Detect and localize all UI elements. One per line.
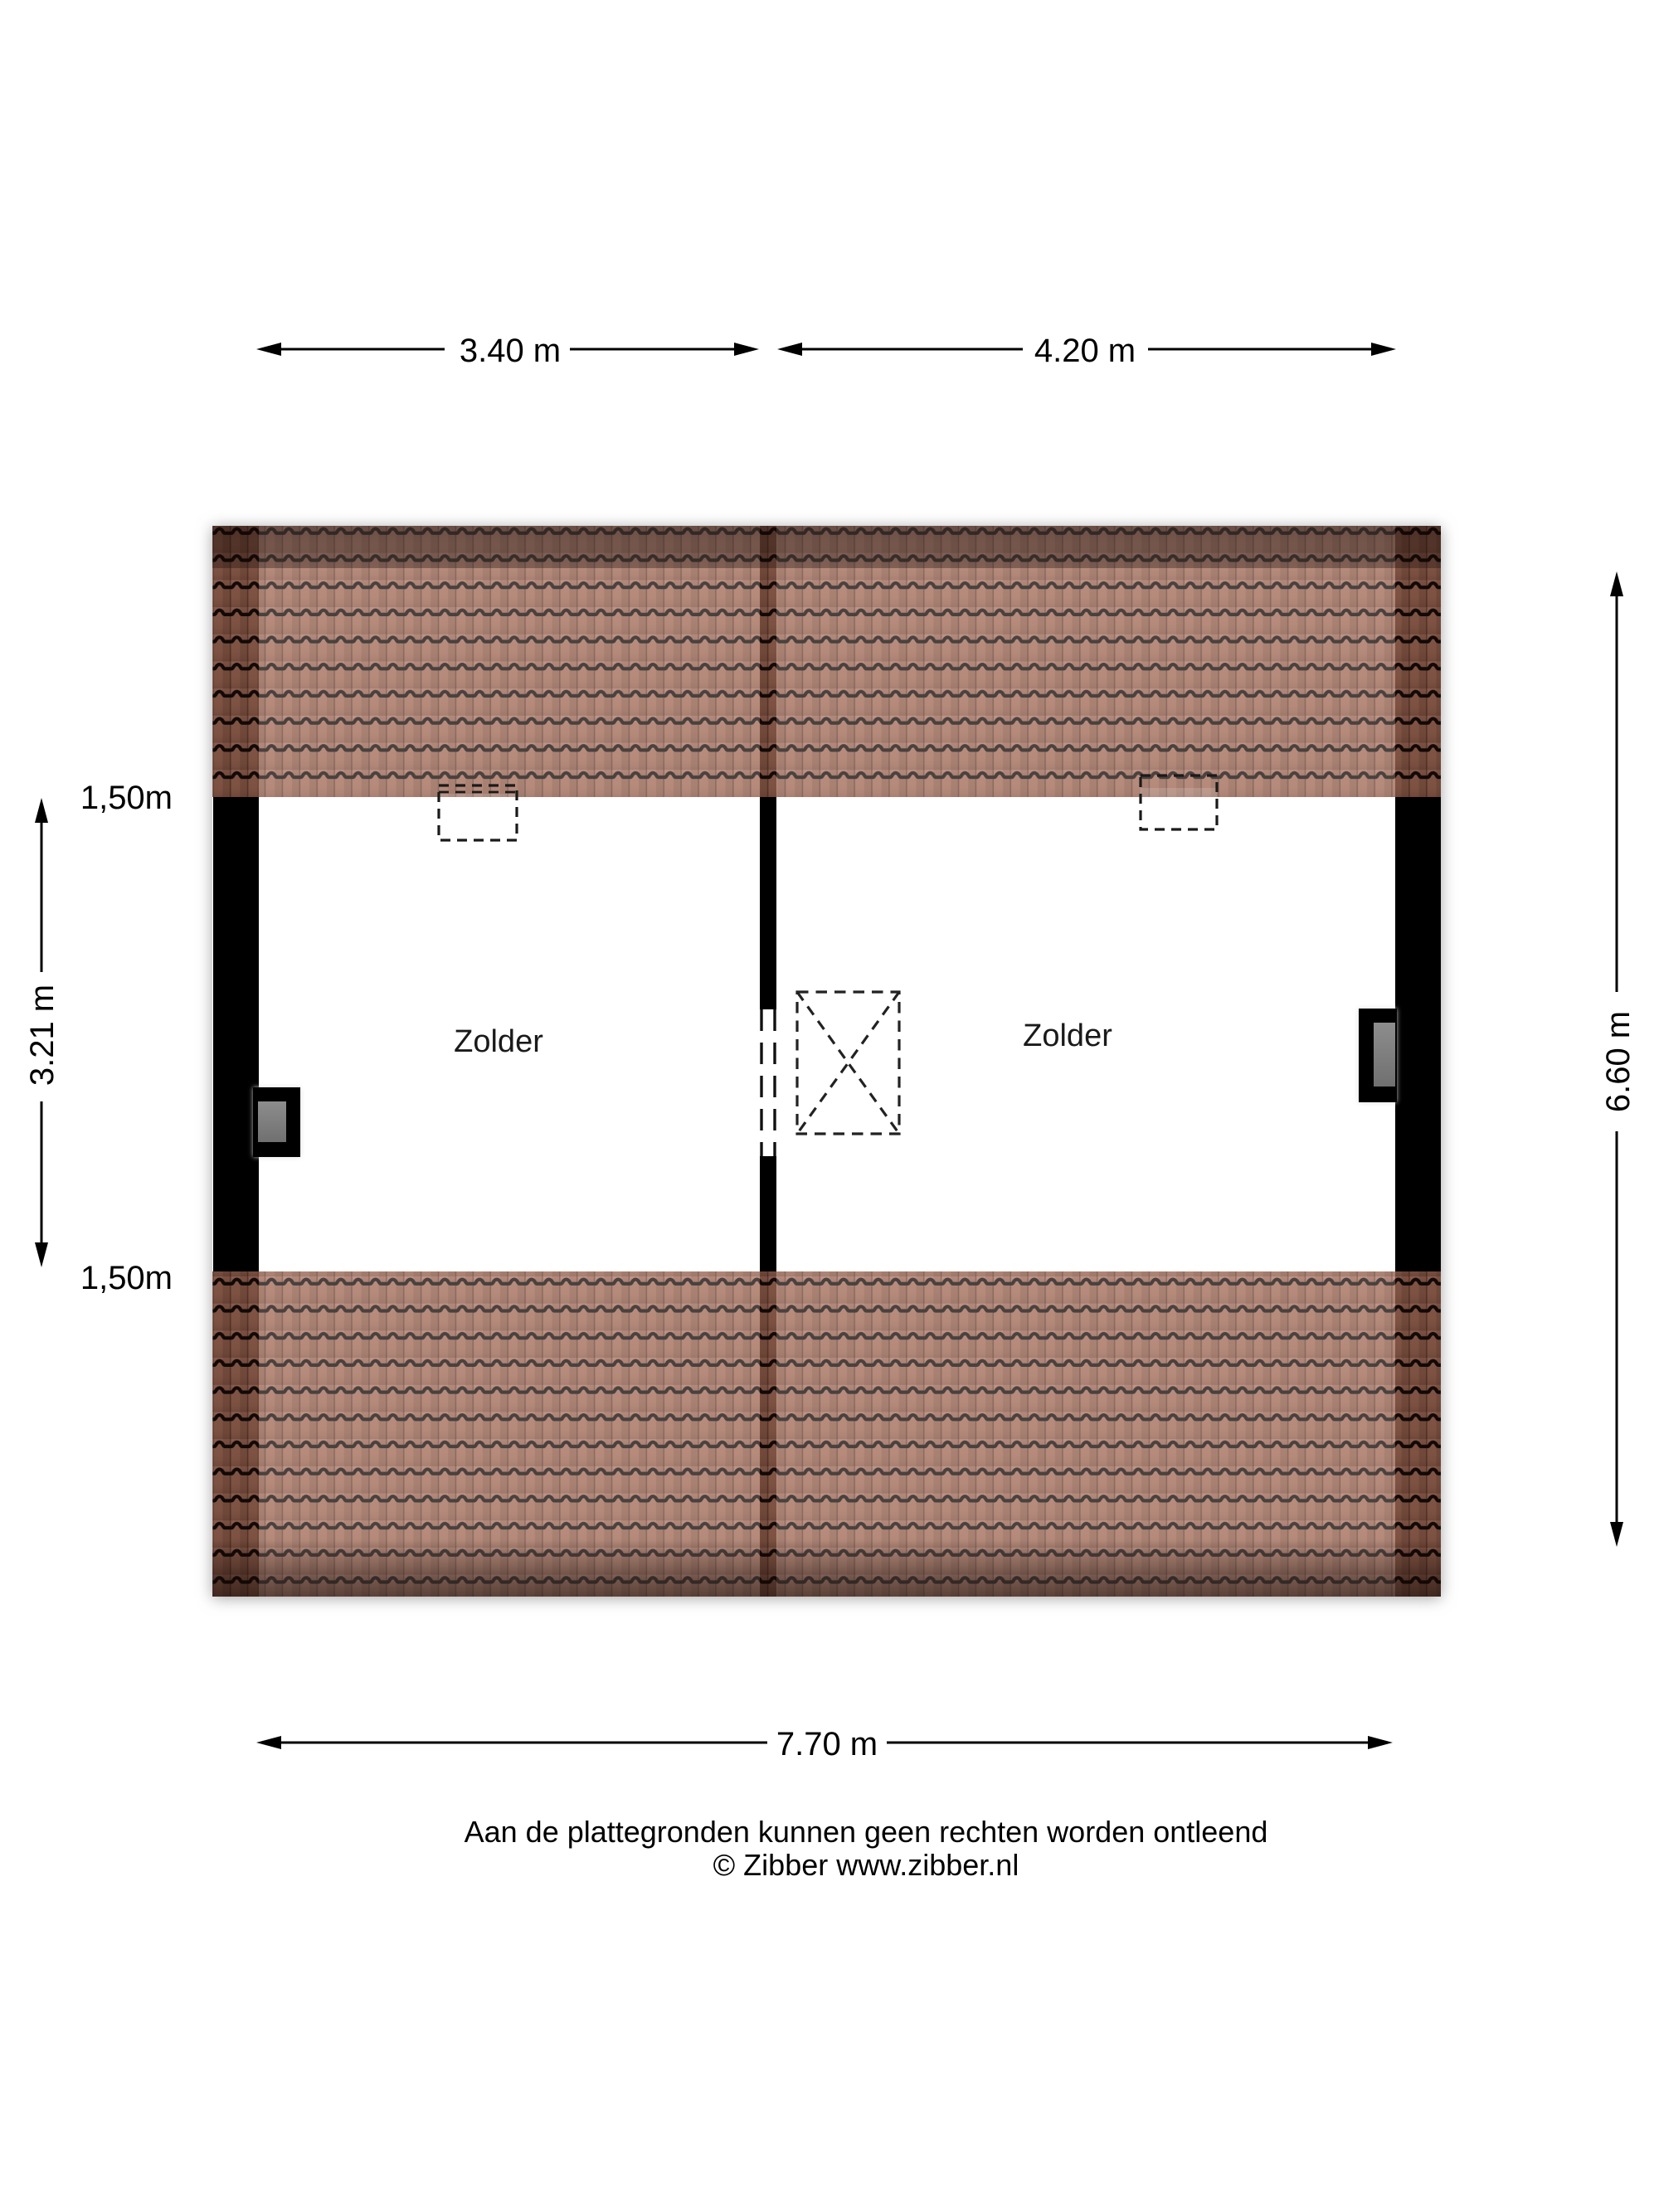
svg-text:Zolder: Zolder	[454, 1024, 543, 1059]
svg-text:3.40 m: 3.40 m	[460, 333, 561, 369]
svg-text:© Zibber www.zibber.nl: © Zibber www.zibber.nl	[713, 1848, 1019, 1882]
svg-text:Zolder: Zolder	[1023, 1018, 1112, 1053]
svg-text:7.70 m: 7.70 m	[776, 1726, 878, 1762]
svg-text:4.20 m: 4.20 m	[1034, 333, 1136, 369]
svg-text:3.21 m: 3.21 m	[24, 984, 61, 1086]
svg-text:Aan de plattegronden kunnen ge: Aan de plattegronden kunnen geen rechten…	[465, 1815, 1268, 1849]
svg-text:1,50m: 1,50m	[80, 1260, 173, 1296]
svg-text:1,50m: 1,50m	[80, 780, 173, 816]
svg-text:6.60 m: 6.60 m	[1600, 1011, 1637, 1112]
